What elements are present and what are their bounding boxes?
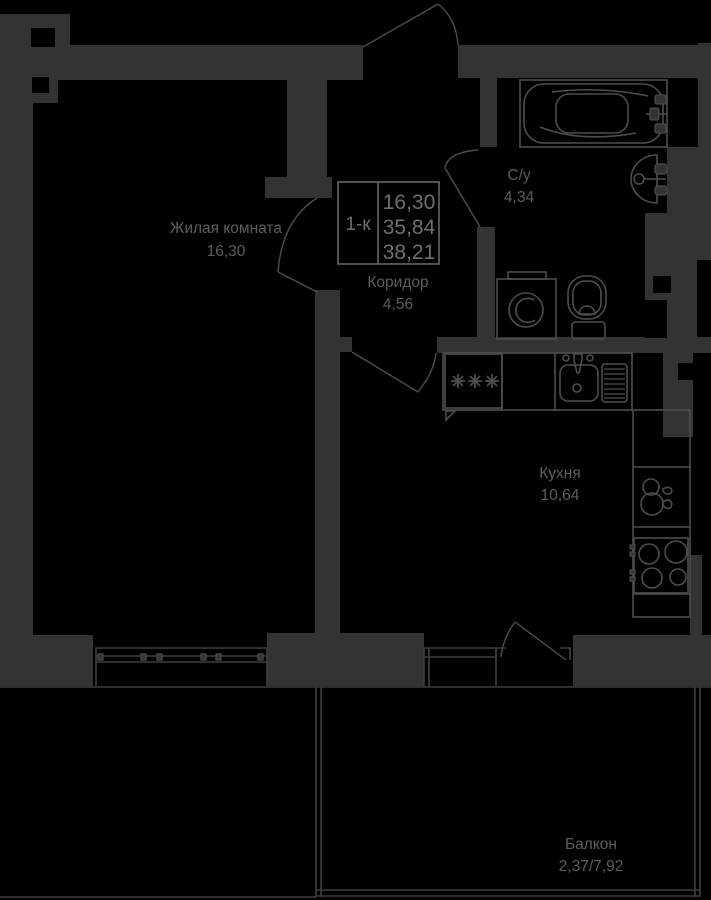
kitchen-label: Кухня [539,465,580,482]
kitchen-sink-icon [560,354,598,401]
kettle-icon [641,479,672,515]
flat-type-label: 1-к [345,214,371,235]
corridor-label: Коридор [367,274,428,291]
kitchen-counter [443,353,690,617]
info-box: 1-к 16,30 35,84 38,21 [338,182,439,264]
balcony-area: 2,37/7,92 [559,858,624,875]
dish-drainer-icon [602,364,627,402]
bathroom-sink-icon [631,155,667,203]
kitchen-door-icon [352,352,436,392]
floor-plan: 1-к 16,30 35,84 38,21 Жилая комната 16,3… [0,0,711,900]
walls-layer [0,14,711,686]
bathroom-area: 4,34 [504,189,535,206]
washing-machine-icon [497,272,556,339]
living-room-label: Жилая комната [170,220,282,237]
balcony-door-icon [496,622,570,660]
room-labels: Жилая комната 16,30 Коридор 4,56 С/у 4,3… [170,167,623,875]
bathroom-door-icon [445,150,480,227]
toilet-icon [568,276,606,339]
kitchen-window [424,648,496,686]
fridge-icon [451,374,499,388]
living-room-area: 16,30 [207,243,246,260]
bathtub-icon [520,80,667,147]
living-area-value: 16,30 [383,191,436,214]
living-room-door-icon [278,198,317,292]
bathroom-label: С/у [507,167,531,184]
stove-icon [630,538,688,593]
floor-plan-canvas: 1-к 16,30 35,84 38,21 Жилая комната 16,3… [0,0,711,900]
balcony-label: Балкон [565,836,617,853]
kitchen-area: 10,64 [541,487,580,504]
entrance-door-icon [363,4,458,47]
total-area-value: 38,21 [383,241,436,264]
living-room-window [96,648,267,686]
flat-area-value: 35,84 [383,216,436,239]
corridor-area: 4,56 [383,296,413,313]
